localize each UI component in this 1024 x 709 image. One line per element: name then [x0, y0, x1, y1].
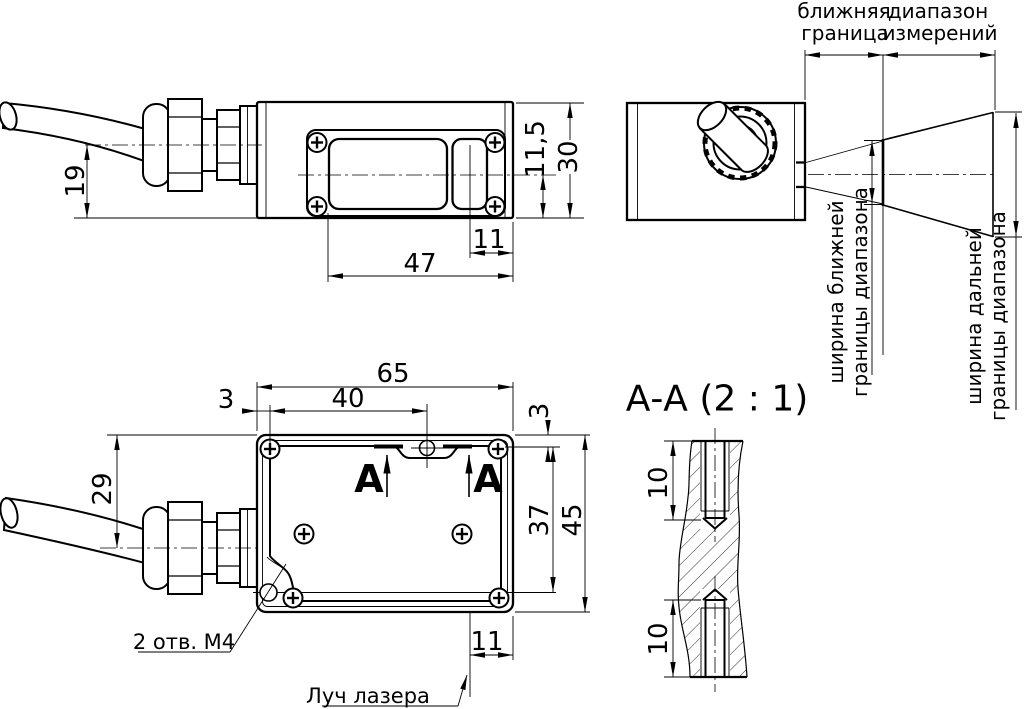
dim-45: 45: [558, 503, 588, 536]
cable: [3, 103, 152, 164]
range-label-1: диапазон: [888, 0, 988, 23]
far-width-label-1: ширина дальней: [962, 227, 986, 405]
end-view: ближняя граница диапазон измерений ширин…: [627, 0, 1022, 421]
dim-11-side: 11: [472, 225, 505, 255]
section-letter-left: А: [354, 457, 384, 501]
dim-10-top: 10: [644, 466, 674, 499]
near-boundary-label-2: граница: [801, 21, 888, 45]
dim-3-left: 3: [218, 385, 235, 415]
section-view: А-А (2 : 1): [626, 379, 809, 693]
dim-11-5: 11,5: [521, 120, 551, 178]
technical-drawing-page: 19 47 11 11,5 30: [0, 0, 1024, 709]
near-width-label-2: границы диапазона: [848, 187, 872, 397]
dim-65: 65: [376, 359, 409, 389]
near-boundary-label-1: ближняя: [797, 0, 890, 23]
sensor-body-side: [257, 102, 513, 218]
top-view: А А 65 3 40 29 3 37 45 11 Луч лазера: [0, 359, 590, 708]
dim-19: 19: [61, 164, 91, 197]
far-width-label-2: границы диапазона: [986, 211, 1010, 421]
side-view: 19 47 11 11,5 30: [0, 99, 584, 282]
dim-30: 30: [554, 140, 584, 173]
dim-40: 40: [331, 384, 364, 414]
dim-47: 47: [403, 249, 436, 279]
dim-37: 37: [525, 503, 555, 536]
dim-29: 29: [88, 472, 118, 505]
laser-beam-note: Луч лазера: [306, 684, 430, 708]
section-title: А-А (2 : 1): [626, 379, 809, 420]
corner-mounting-hole: [260, 584, 277, 601]
laser-sensor-drawing: 19 47 11 11,5 30: [0, 0, 1024, 709]
range-label-2: измерений: [882, 21, 997, 45]
dim-3-right: 3: [525, 403, 555, 420]
dim-11-beam: 11: [470, 627, 503, 657]
dim-10-bottom: 10: [644, 622, 674, 655]
cable: [4, 498, 152, 565]
section-letter-right: А: [473, 457, 503, 501]
holes-note: 2 отв. М4: [133, 630, 235, 654]
near-width-label-1: ширина ближней: [824, 200, 848, 383]
